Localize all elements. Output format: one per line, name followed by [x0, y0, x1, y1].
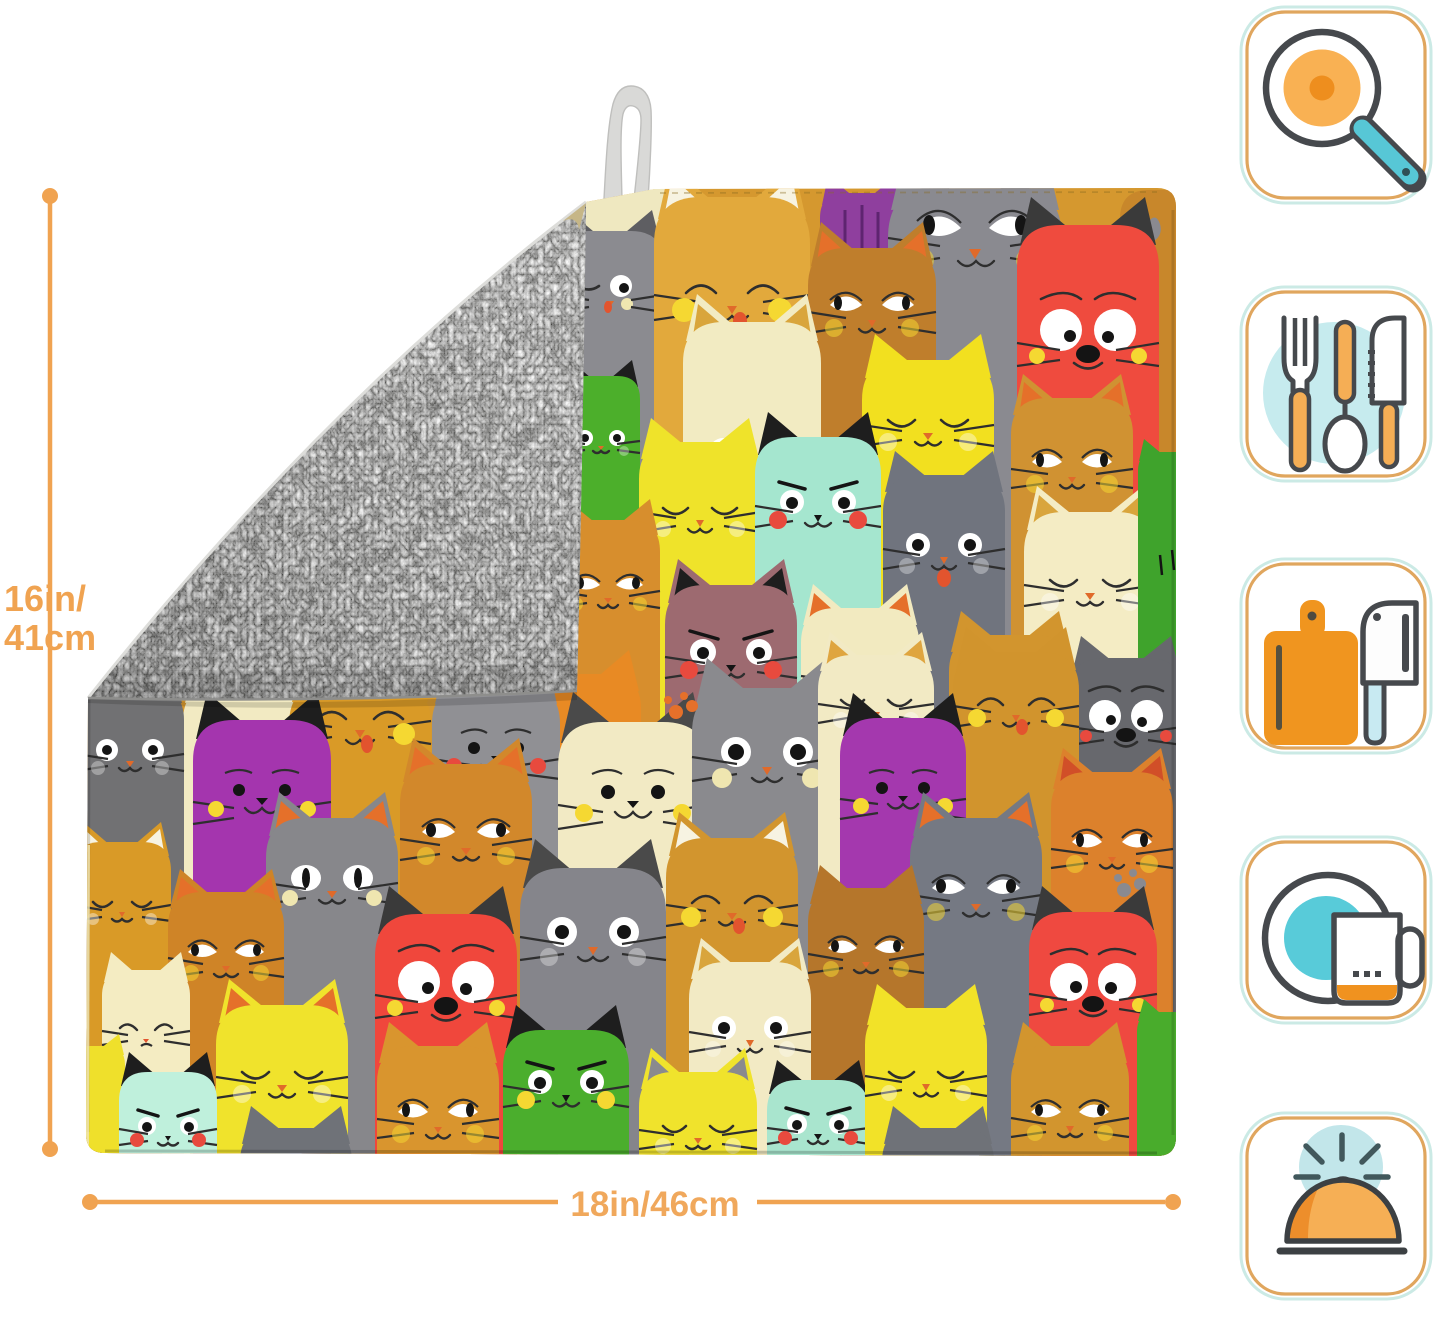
svg-text:41cm: 41cm [4, 617, 96, 658]
svg-text:18in/46cm: 18in/46cm [570, 1185, 739, 1224]
svg-text:16in/: 16in/ [4, 578, 86, 619]
